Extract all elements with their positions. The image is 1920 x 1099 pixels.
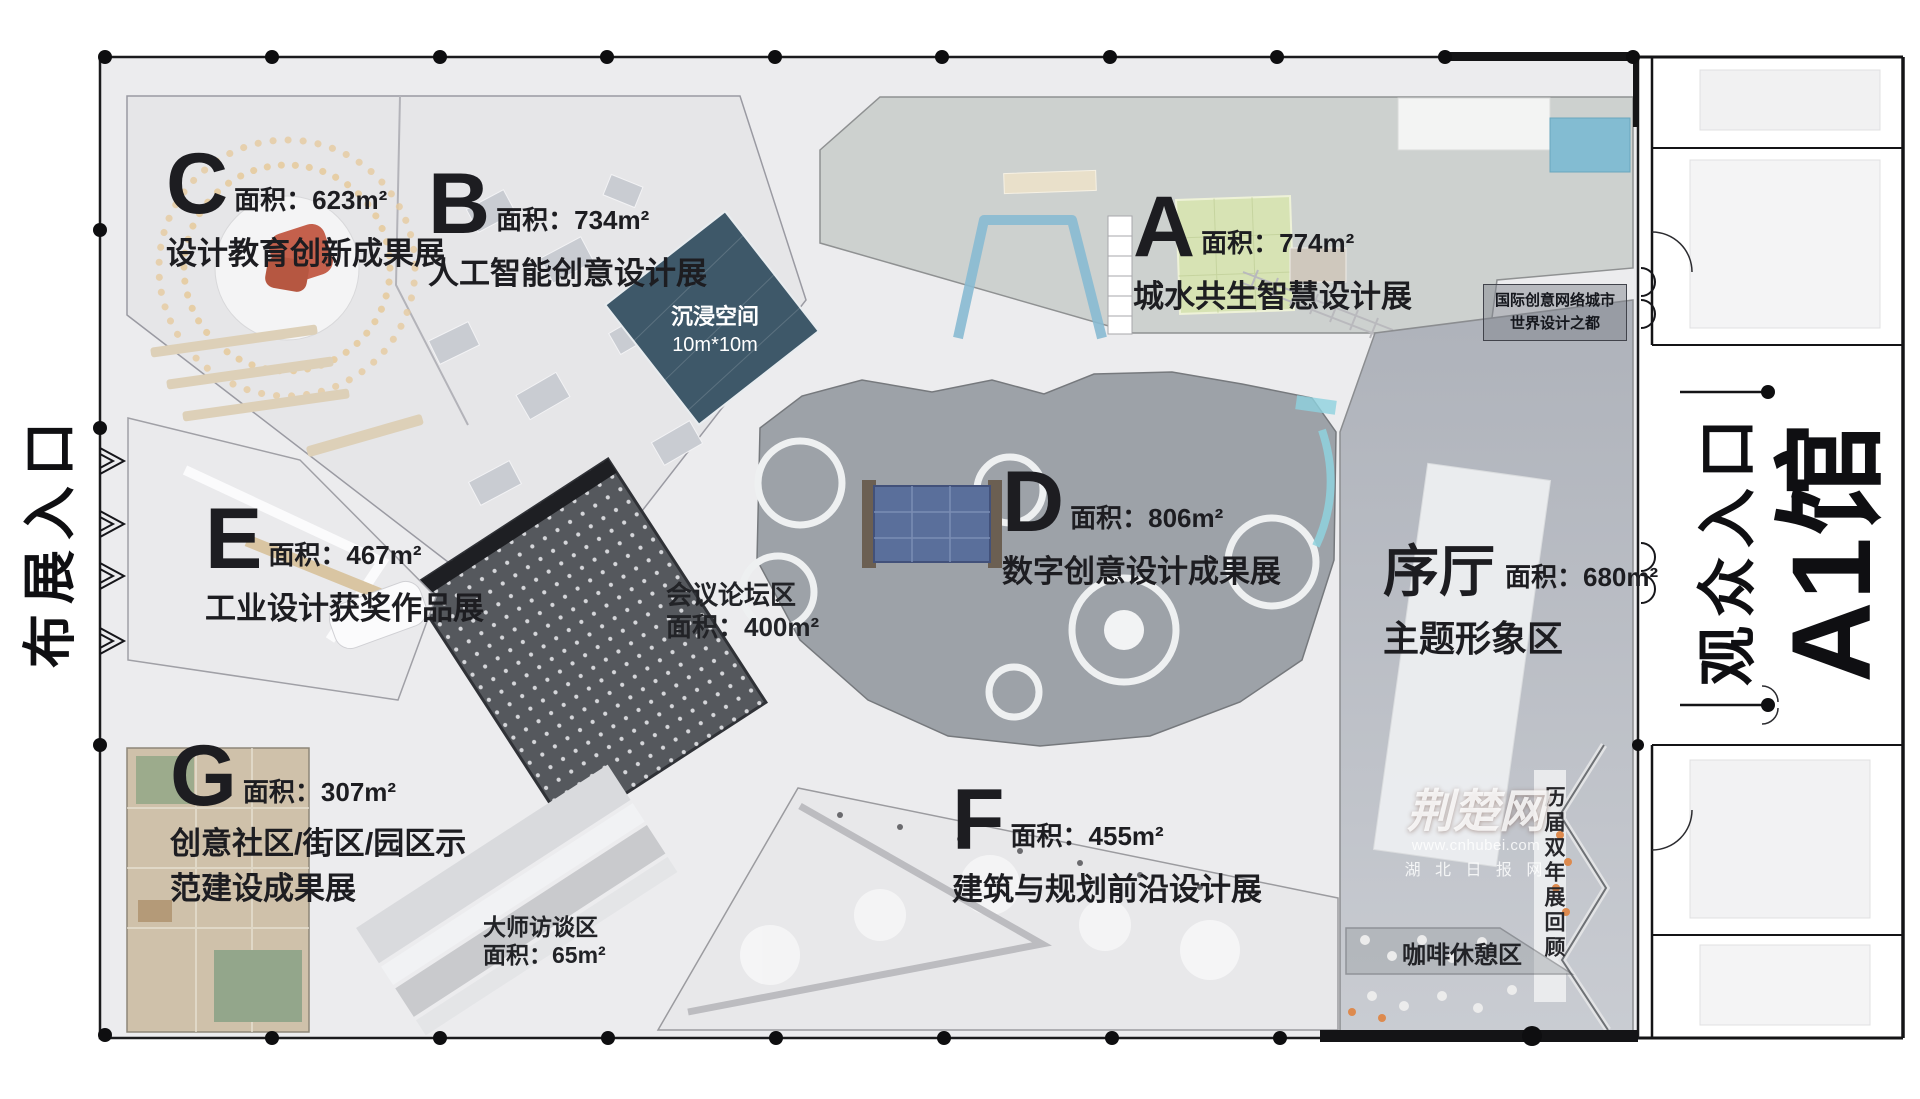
conference-line1: 会议论坛区 (666, 580, 819, 612)
zone-d-letter: D (1002, 468, 1062, 537)
zone-c-letter: C (166, 150, 226, 219)
watermark-publisher: 湖 北 日 报 网 (1386, 856, 1566, 880)
foyer-area: 面积：680m² (1505, 557, 1658, 594)
foyer-title: 序厅 (1383, 545, 1495, 598)
zone-b-name: 人工智能创意设计展 (428, 248, 707, 293)
zone-a-name: 城水共生智慧设计展 (1133, 271, 1412, 316)
zone-c-name: 设计教育创新成果展 (166, 228, 445, 273)
zone-b-letter: B (428, 170, 488, 239)
watermark: 荆楚网 www.cnhubei.com 湖 北 日 报 网 (1386, 788, 1566, 880)
digital-wall (874, 486, 990, 562)
immersive-line1: 沉浸空间 (650, 303, 780, 332)
immersive-space-label: 沉浸空间 10m*10m (650, 303, 780, 358)
zone-a-letter: A (1133, 193, 1193, 262)
master-line1: 大师访谈区 (483, 913, 606, 941)
conference-label: 会议论坛区 面积：400m² (666, 580, 819, 643)
zone-f-area: 面积：455m² (1011, 816, 1164, 853)
foyer-region (1340, 300, 1633, 1032)
zone-e-letter: E (205, 505, 260, 574)
zone-d-name: 数字创意设计成果展 (1002, 546, 1281, 591)
zone-b-label: B 面积：734m² 人工智能创意设计展 (428, 170, 707, 293)
zone-f-label: F 面积：455m² 建筑与规划前沿设计展 (952, 786, 1262, 909)
zone-c-label: C 面积：623m² 设计教育创新成果展 (166, 150, 445, 273)
badge-line2: 世界设计之都 (1487, 313, 1623, 336)
immersive-line2: 10m*10m (650, 332, 780, 358)
zone-a-area: 面积：774m² (1201, 223, 1354, 260)
blue-table (1550, 118, 1630, 172)
zone-c-area: 面积：623m² (234, 180, 387, 217)
coffee-label: 咖啡休憩区 (1402, 941, 1522, 970)
hall-name-label: A1馆 (1741, 421, 1903, 682)
design-city-badge: 国际创意网络城市 世界设计之都 (1483, 284, 1627, 341)
watermark-url: www.cnhubei.com (1386, 837, 1566, 854)
zone-e-label: E 面积：467m² 工业设计获奖作品展 (205, 505, 484, 628)
zone-b-area: 面积：734m² (496, 200, 649, 237)
green-patch (214, 950, 302, 1022)
watermark-logo: 荆楚网 (1386, 788, 1566, 834)
foyer-label: 序厅 面积：680m² 主题形象区 (1383, 545, 1658, 662)
zone-g-name-line1: 创意社区/街区/园区示 (170, 818, 466, 863)
zone-g-letter: G (170, 742, 235, 811)
zone-f-name: 建筑与规划前沿设计展 (952, 864, 1262, 909)
badge-line1: 国际创意网络城市 (1487, 290, 1623, 313)
setup-entrance-label: 布展入口 (6, 412, 85, 668)
zone-e-name: 工业设计获奖作品展 (205, 583, 484, 628)
master-line2: 面积：65m² (483, 941, 606, 969)
master-talk-label: 大师访谈区 面积：65m² (483, 913, 606, 969)
floor-plan-canvas: C 面积：623m² 设计教育创新成果展 B 面积：734m² 人工智能创意设计… (0, 0, 1920, 1099)
zone-d-label: D 面积：806m² 数字创意设计成果展 (1002, 468, 1281, 591)
zone-f-letter: F (952, 786, 1003, 855)
conference-line2: 面积：400m² (666, 612, 819, 644)
zone-d-area: 面积：806m² (1070, 498, 1223, 535)
ladder-shelf (1108, 216, 1132, 334)
zone-e-area: 面积：467m² (268, 535, 421, 572)
zone-g-area: 面积：307m² (243, 772, 396, 809)
zone-g-name-line2: 范建设成果展 (170, 863, 466, 908)
foyer-name: 主题形象区 (1383, 610, 1658, 662)
zone-a-label: A 面积：774m² 城水共生智慧设计展 (1133, 193, 1412, 316)
zone-g-label: G 面积：307m² 创意社区/街区/园区示 范建设成果展 (170, 742, 466, 908)
